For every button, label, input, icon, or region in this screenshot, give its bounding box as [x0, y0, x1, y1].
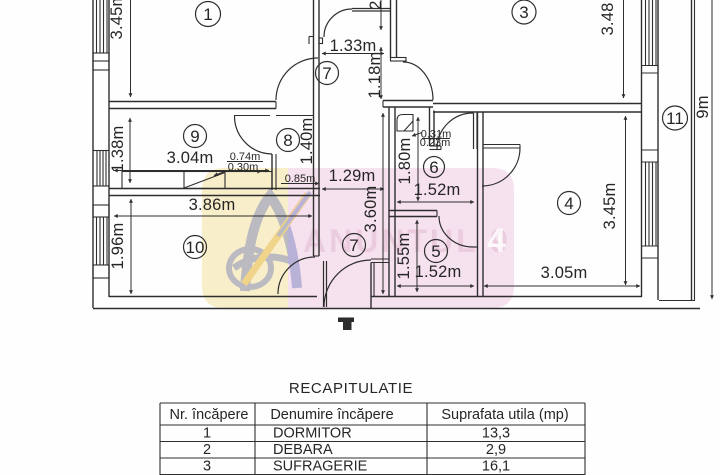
svg-text:13,3: 13,3: [482, 426, 510, 442]
svg-text:1.55m: 1.55m: [395, 233, 413, 280]
svg-text:DEBARA: DEBARA: [273, 442, 333, 458]
svg-text:3: 3: [203, 459, 211, 475]
svg-text:16,1: 16,1: [482, 459, 510, 475]
svg-text:1: 1: [203, 5, 212, 24]
svg-text:9m: 9m: [694, 95, 712, 118]
svg-text:8: 8: [283, 131, 292, 150]
svg-text:1.80m: 1.80m: [396, 138, 414, 185]
svg-text:SUFRAGERIE: SUFRAGERIE: [273, 459, 368, 475]
svg-text:2: 2: [367, 0, 385, 9]
svg-text:7: 7: [322, 64, 331, 83]
svg-text:6: 6: [429, 158, 438, 177]
svg-text:1.52m: 1.52m: [415, 263, 462, 281]
svg-text:9: 9: [190, 127, 199, 146]
svg-text:2,9: 2,9: [486, 442, 506, 458]
svg-text:10: 10: [186, 238, 205, 257]
svg-text:3.04m: 3.04m: [167, 149, 214, 167]
svg-text:1.52m: 1.52m: [414, 181, 461, 199]
svg-text:DORMITOR: DORMITOR: [273, 426, 352, 442]
svg-text:1.96m: 1.96m: [109, 223, 127, 270]
svg-text:3.48: 3.48: [599, 3, 617, 36]
svg-text:Denumire încăpere: Denumire încăpere: [270, 407, 393, 423]
svg-text:0.23m: 0.23m: [420, 137, 451, 149]
svg-text:Nr. încăpere: Nr. încăpere: [170, 407, 249, 423]
svg-text:3.45m: 3.45m: [601, 183, 619, 230]
svg-text:3.45m: 3.45m: [108, 0, 126, 39]
svg-text:1.38m: 1.38m: [109, 126, 127, 173]
svg-text:7: 7: [349, 236, 358, 255]
svg-text:1.29m: 1.29m: [329, 167, 376, 185]
svg-text:Suprafata utila (mp): Suprafata utila (mp): [441, 407, 568, 423]
svg-text:3.05m: 3.05m: [541, 264, 588, 282]
svg-text:5: 5: [431, 242, 440, 261]
svg-text:1: 1: [203, 426, 211, 442]
svg-text:2: 2: [203, 442, 211, 458]
svg-text:11: 11: [666, 109, 684, 128]
svg-text:1.18m: 1.18m: [366, 52, 384, 99]
svg-text:4: 4: [487, 222, 506, 260]
svg-text:4: 4: [564, 194, 573, 213]
svg-text:3.86m: 3.86m: [189, 196, 236, 214]
svg-text:RECAPITULATIE: RECAPITULATIE: [289, 380, 413, 397]
svg-text:1.40m: 1.40m: [298, 118, 316, 165]
svg-text:3: 3: [519, 3, 528, 22]
svg-text:3.60m: 3.60m: [362, 186, 380, 233]
